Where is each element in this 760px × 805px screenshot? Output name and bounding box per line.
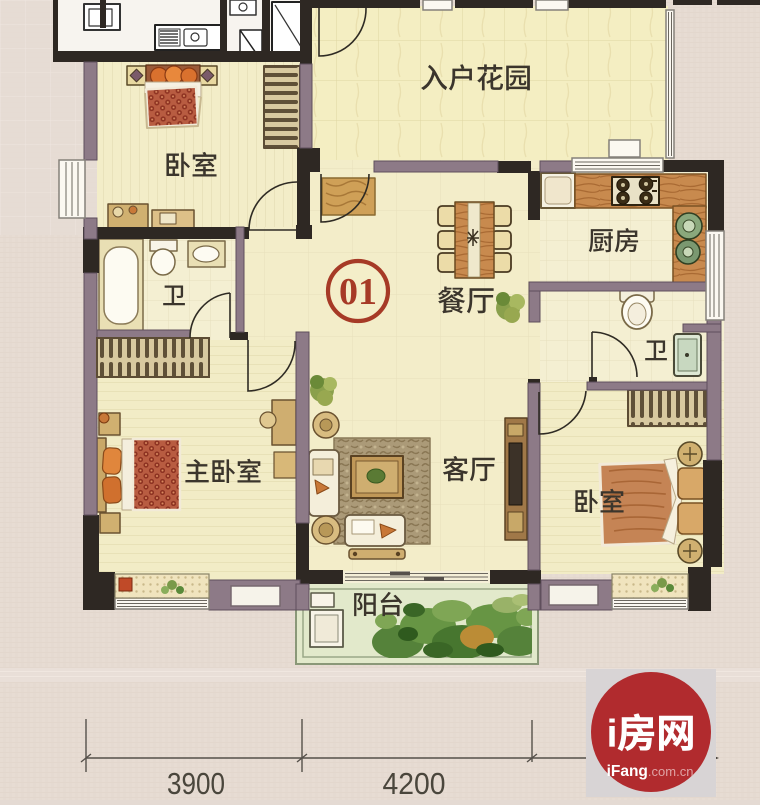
svg-text:4200: 4200 (383, 766, 446, 800)
svg-text:阳台: 阳台 (352, 585, 404, 622)
svg-text:卧室: 卧室 (573, 482, 625, 519)
svg-text:厨房: 厨房 (588, 221, 640, 258)
svg-text:卫: 卫 (162, 276, 186, 311)
svg-text:主卧室: 主卧室 (184, 452, 262, 489)
svg-text:客厅: 客厅 (442, 448, 496, 487)
svg-text:卫: 卫 (644, 331, 668, 366)
svg-text:iFang.com.cn: iFang.com.cn (607, 763, 694, 780)
svg-text:3900: 3900 (167, 766, 225, 800)
svg-text:01: 01 (339, 271, 377, 313)
svg-text:入户花园: 入户花园 (420, 57, 532, 97)
svg-text:i房网: i房网 (607, 703, 696, 759)
svg-text:餐厅: 餐厅 (437, 278, 495, 320)
svg-text:卧室: 卧室 (164, 144, 218, 183)
